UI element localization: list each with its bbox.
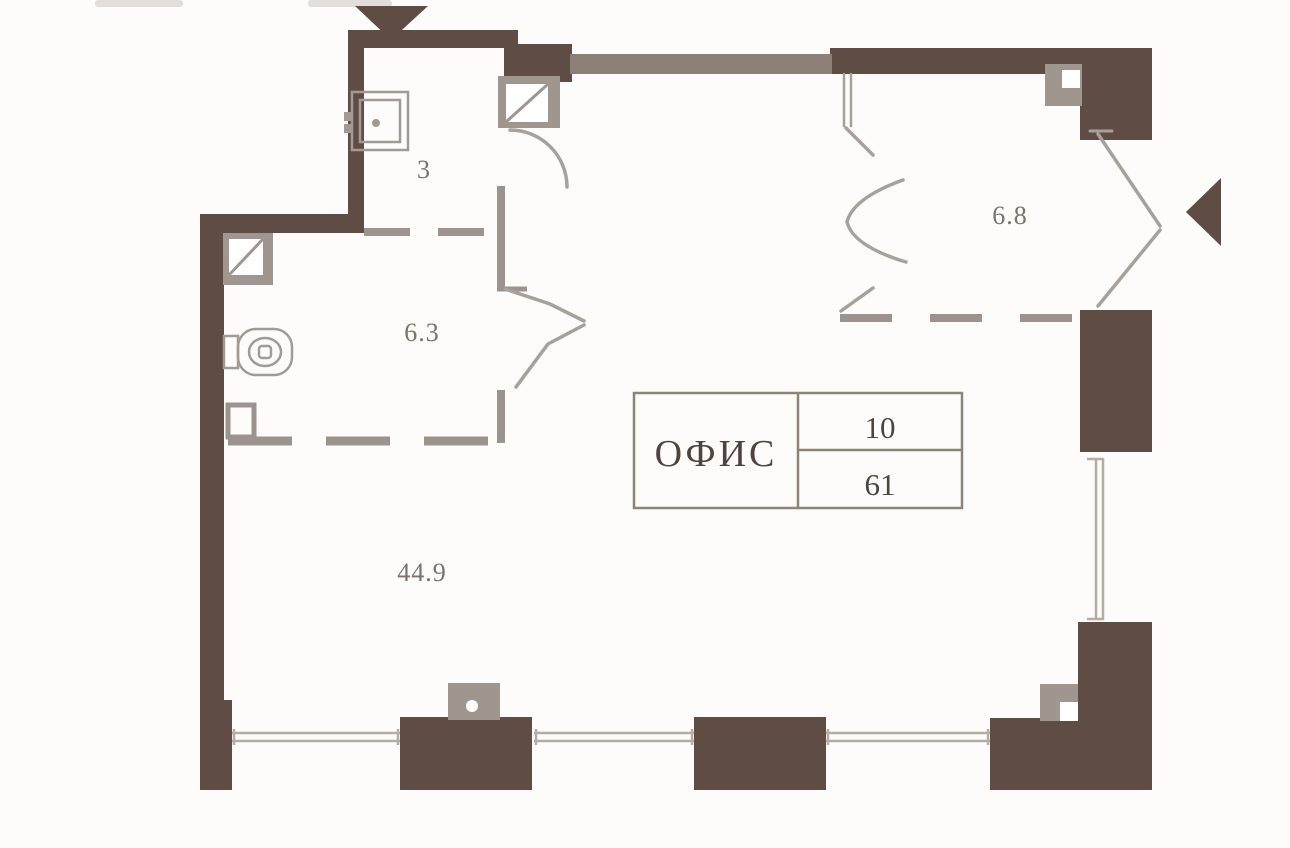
double-door-room-6-8-left <box>841 74 906 311</box>
shaft-square-left <box>223 233 273 285</box>
toilet-icon <box>224 329 292 375</box>
entrance-arrow-left-icon <box>1186 178 1221 246</box>
door-room3 <box>510 130 567 187</box>
exterior-walls <box>200 30 1152 790</box>
column-marker-bottom-right <box>1040 684 1078 721</box>
office-table-unit-number: 10 <box>865 410 896 445</box>
room-label-6-3: 6.3 <box>404 318 440 347</box>
shaft-square-top-right <box>1045 64 1082 106</box>
wall-niche-square <box>228 405 254 437</box>
office-table-name: ОФИС <box>655 433 778 475</box>
room-label-3: 3 <box>417 155 431 184</box>
cropped-text-artifact <box>95 0 392 7</box>
floor-plan-canvas: 3 6.3 6.8 44.9 ОФИС 10 61 <box>0 0 1290 848</box>
window-right-side <box>1087 458 1103 620</box>
top-wall-light-band <box>570 54 832 74</box>
office-info-table: ОФИС 10 61 <box>634 393 962 508</box>
shaft-square-room3 <box>498 76 560 128</box>
office-table-area: 61 <box>865 467 896 502</box>
entrance-double-door-right <box>1090 131 1160 306</box>
double-door-room-6-3 <box>505 289 584 387</box>
window-wall-bottom <box>232 729 990 745</box>
floor-plan-drawing: 3 6.3 6.8 44.9 ОФИС 10 61 <box>0 0 1290 848</box>
column-marker-bottom-left <box>448 683 500 720</box>
room-label-6-8: 6.8 <box>992 201 1028 230</box>
room-label-44-9: 44.9 <box>397 558 447 587</box>
